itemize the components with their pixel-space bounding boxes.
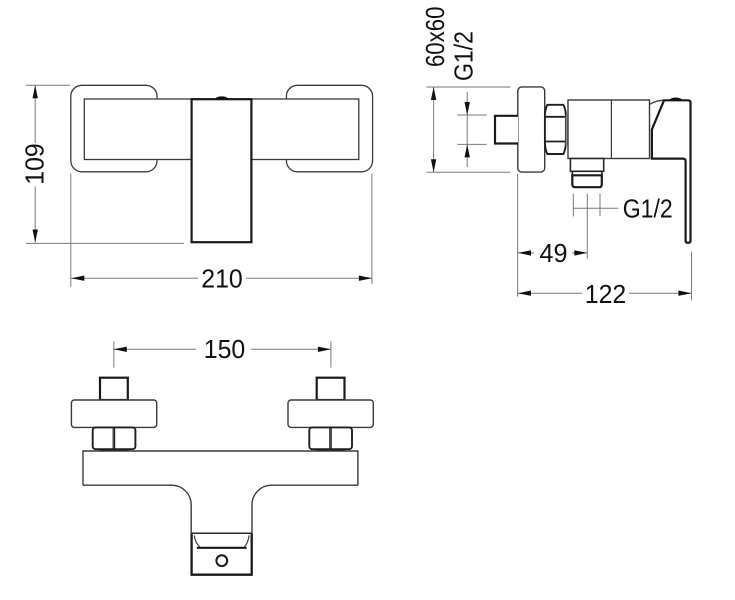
svg-text:122: 122 [585, 279, 627, 309]
svg-text:G1/2: G1/2 [449, 31, 479, 81]
svg-text:150: 150 [204, 334, 246, 364]
svg-text:210: 210 [201, 264, 243, 294]
svg-text:49: 49 [540, 238, 568, 268]
svg-text:60x60: 60x60 [420, 7, 450, 68]
svg-text:109: 109 [20, 143, 50, 185]
svg-text:G1/2: G1/2 [623, 193, 673, 223]
